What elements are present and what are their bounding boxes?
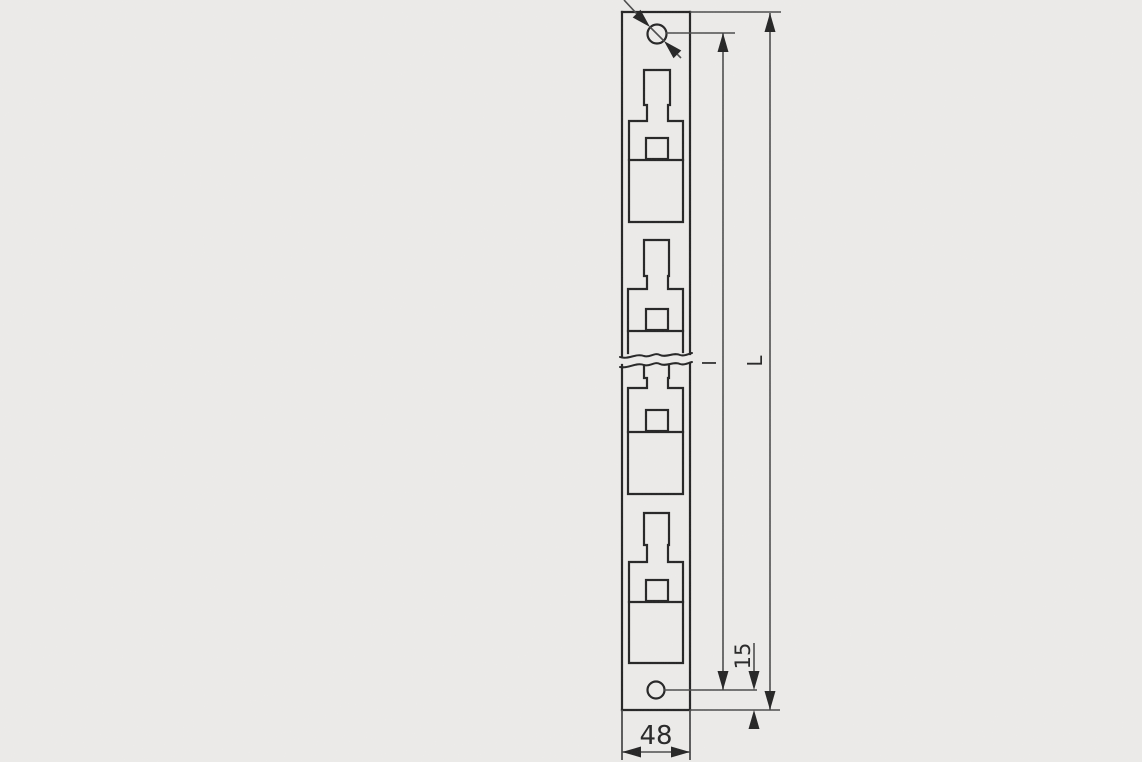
technical-drawing-canvas: L l 15 48: [0, 0, 1142, 762]
strike-plate-drawing: L l 15 48: [0, 0, 1142, 762]
paper-noise-overlay: [0, 0, 1142, 762]
